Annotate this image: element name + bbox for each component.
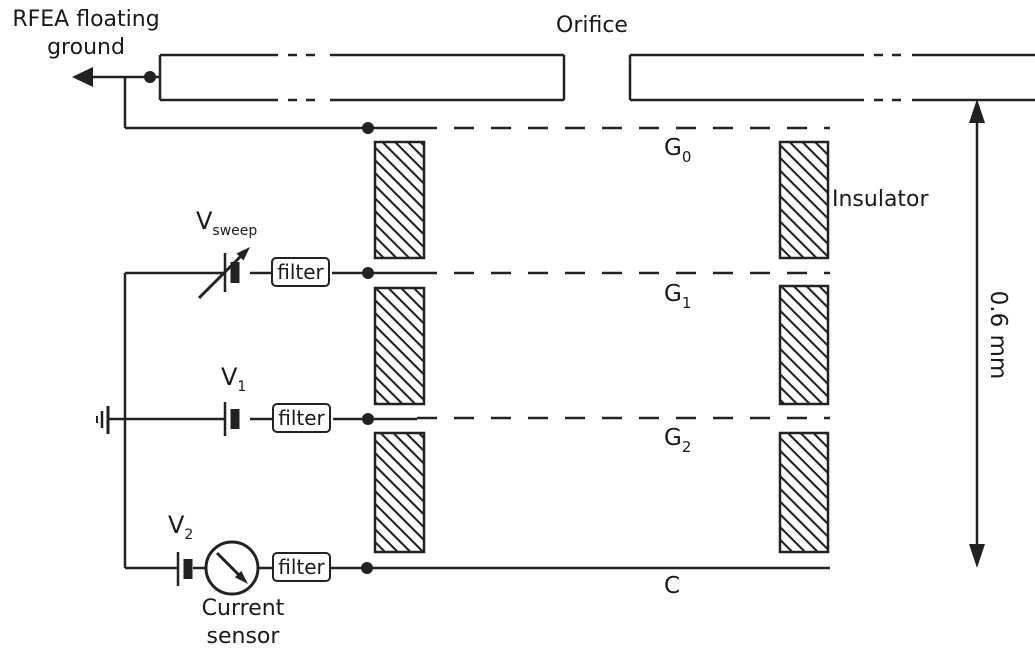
- insulator-block: [375, 288, 424, 404]
- vsweep-label: Vsweep: [196, 206, 257, 241]
- junction-dot: [144, 71, 156, 83]
- top-plate-left: [160, 55, 564, 100]
- grid-label-g1: G1: [664, 280, 691, 313]
- grid-label-g0: G0: [664, 134, 691, 167]
- junction-dot: [362, 267, 374, 279]
- filter-box: filter: [272, 403, 331, 433]
- battery-icon: [225, 402, 240, 436]
- filter-box: filter: [272, 552, 331, 582]
- v1-branch: [97, 402, 830, 436]
- insulator-label: Insulator: [832, 186, 929, 214]
- junction-dot: [362, 413, 374, 425]
- schematic-linework: [0, 0, 1035, 660]
- grid-line-g0: [125, 122, 830, 134]
- insulator-block: [780, 142, 828, 258]
- floating-ground-label: RFEA floating ground: [6, 6, 166, 61]
- v1-label: V1: [221, 362, 246, 397]
- insulator-blocks: [375, 142, 828, 552]
- junction-dot: [361, 562, 373, 574]
- rfea-schematic: RFEA floating ground Orifice Vsweep V1 V…: [0, 0, 1035, 660]
- insulator-block: [375, 433, 424, 552]
- v2-label: V2: [168, 510, 193, 545]
- v2-branch: [125, 542, 830, 594]
- current-sensor-label: Current sensor: [178, 595, 308, 650]
- insulator-block: [780, 286, 828, 404]
- vsweep-branch: [125, 247, 830, 298]
- insulator-block: [780, 433, 828, 552]
- insulator-block: [375, 142, 424, 258]
- filter-box: filter: [271, 257, 330, 287]
- grid-label-g2: G2: [664, 424, 691, 457]
- current-sensor-icon: [206, 542, 258, 594]
- battery-icon: [178, 552, 193, 586]
- collector-label: C: [664, 572, 680, 601]
- top-plate-right: [630, 55, 1035, 100]
- orifice-label: Orifice: [556, 12, 628, 40]
- dimension-label: 0.6 mm: [985, 289, 1011, 381]
- junction-dot: [362, 122, 374, 134]
- ground-icon: [97, 406, 108, 434]
- double-headed-arrow-icon: [969, 99, 985, 568]
